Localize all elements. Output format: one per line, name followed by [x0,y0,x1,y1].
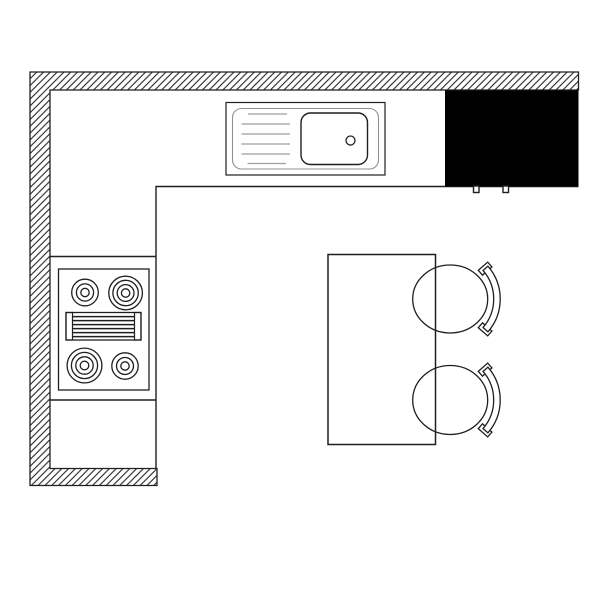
appliance [445,91,579,193]
chair-seat [413,265,488,333]
center-grill [66,313,141,341]
chair-backrest [483,266,500,332]
sink-basin [301,113,368,165]
floor-plan-drawing [0,0,606,591]
appliance-block [445,91,579,187]
cooktop [59,269,150,390]
chair-backrest [483,367,500,433]
kitchen-sink [226,103,385,176]
plan-linework [30,72,579,486]
appliance-foot-right [503,186,509,193]
sink-drain [346,136,355,145]
chair-2 [413,363,501,437]
chair-1 [413,262,501,336]
kitchen-floor-plan [0,0,606,591]
island-table [328,255,436,445]
appliance-foot-left [474,186,480,193]
chair-seat [413,366,488,435]
